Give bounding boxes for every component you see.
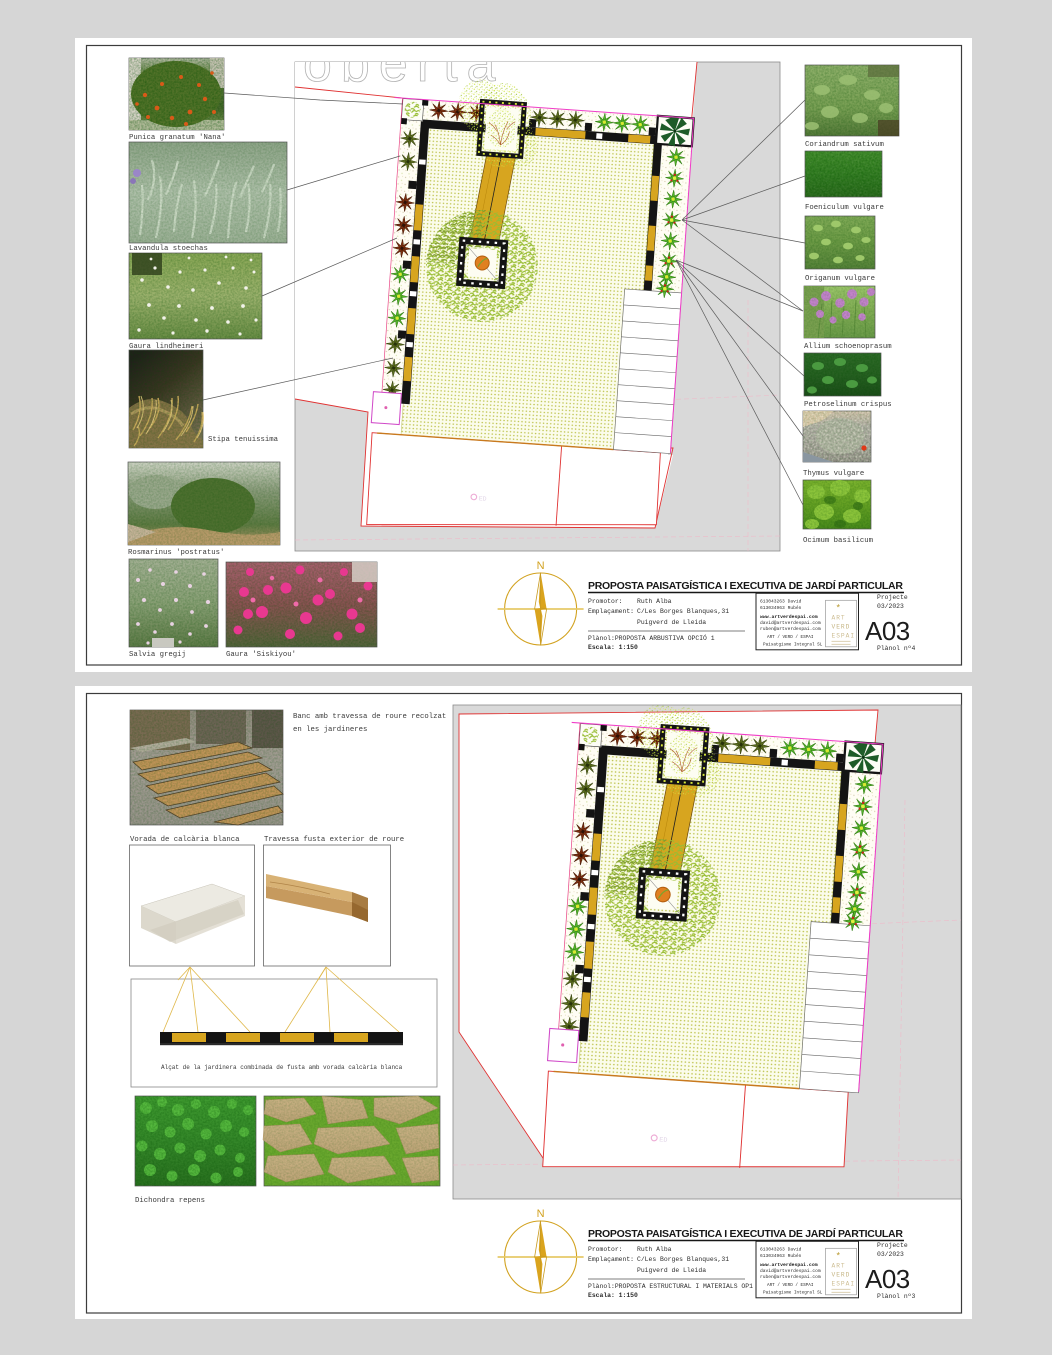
svg-text:Travessa fusta exterior de rou: Travessa fusta exterior de roure — [264, 836, 404, 844]
svg-text:Plànol:PROPOSTA ARBUSTIVA OPCI: Plànol:PROPOSTA ARBUSTIVA OPCIÓ 1 — [588, 633, 715, 642]
svg-text:Escala: 1:150: Escala: 1:150 — [588, 644, 638, 651]
svg-text:Promotor:: Promotor: — [588, 1246, 623, 1253]
svg-text:Thymus vulgare: Thymus vulgare — [803, 470, 864, 478]
svg-text:Punica granatum 'Nana': Punica granatum 'Nana' — [129, 134, 225, 142]
svg-text:Ruth Alba: Ruth Alba — [637, 1246, 672, 1253]
svg-text:en les jardineres: en les jardineres — [293, 726, 367, 734]
svg-text:Origanum vulgare: Origanum vulgare — [805, 275, 875, 283]
svg-text:Alçat de la jardinera combinad: Alçat de la jardinera combinada de fusta… — [161, 1064, 403, 1071]
svg-text:Projecte: Projecte — [877, 1242, 908, 1249]
svg-text:Ocimum basilicum: Ocimum basilicum — [803, 537, 873, 545]
svg-text:Ruth Alba: Ruth Alba — [637, 598, 672, 605]
svg-text:Gaura 'Siskiyou': Gaura 'Siskiyou' — [226, 651, 296, 659]
svg-text:PROPOSTA PAISATGÍSTICA I EXECU: PROPOSTA PAISATGÍSTICA I EXECUTIVA DE JA… — [588, 579, 904, 592]
svg-text:Plànol:PROPOSTA ESTRUCTURAL I: Plànol:PROPOSTA ESTRUCTURAL I MATERIALS … — [588, 1283, 753, 1290]
svg-text:Projecte: Projecte — [877, 594, 908, 601]
svg-text:Emplaçament:: Emplaçament: — [588, 1256, 634, 1263]
svg-text:Lavandula stoechas: Lavandula stoechas — [129, 245, 208, 253]
svg-text:Emplaçament:: Emplaçament: — [588, 608, 634, 615]
svg-text:03/2023: 03/2023 — [877, 603, 904, 610]
svg-text:A03: A03 — [865, 1264, 910, 1294]
svg-text:Salvia gregij: Salvia gregij — [129, 651, 186, 659]
svg-text:Allium schoenoprasum: Allium schoenoprasum — [804, 343, 892, 351]
svg-text:PROPOSTA PAISATGÍSTICA I EXECU: PROPOSTA PAISATGÍSTICA I EXECUTIVA DE JA… — [588, 1227, 904, 1240]
svg-text:Stipa tenuissima: Stipa tenuissima — [208, 436, 279, 444]
svg-text:Promotor:: Promotor: — [588, 598, 623, 605]
svg-text:C/Les Borges Blanques,31: C/Les Borges Blanques,31 — [637, 608, 729, 615]
svg-text:Foeniculum vulgare: Foeniculum vulgare — [805, 204, 884, 212]
svg-text:Rosmarinus 'postratus': Rosmarinus 'postratus' — [128, 549, 224, 557]
svg-text:Dichondra repens: Dichondra repens — [135, 1197, 205, 1205]
svg-text:Plànol nº4: Plànol nº4 — [877, 645, 916, 652]
svg-text:Vorada de calcària blanca: Vorada de calcària blanca — [130, 836, 240, 844]
svg-text:Escala: 1:150: Escala: 1:150 — [588, 1292, 638, 1299]
svg-text:Puigverd de Lleida: Puigverd de Lleida — [637, 1267, 706, 1274]
svg-text:Petroselinum crispus: Petroselinum crispus — [804, 401, 892, 409]
svg-text:Coriandrum sativum: Coriandrum sativum — [805, 141, 884, 149]
svg-text:Plànol nº3: Plànol nº3 — [877, 1293, 916, 1300]
svg-text:A03: A03 — [865, 616, 910, 646]
svg-text:03/2023: 03/2023 — [877, 1251, 904, 1258]
svg-text:C/Les Borges Blanques,31: C/Les Borges Blanques,31 — [637, 1256, 729, 1263]
svg-text:Puigverd de Lleida: Puigverd de Lleida — [637, 619, 706, 626]
svg-text:Banc amb travessa de roure rec: Banc amb travessa de roure recolzat — [293, 713, 446, 721]
